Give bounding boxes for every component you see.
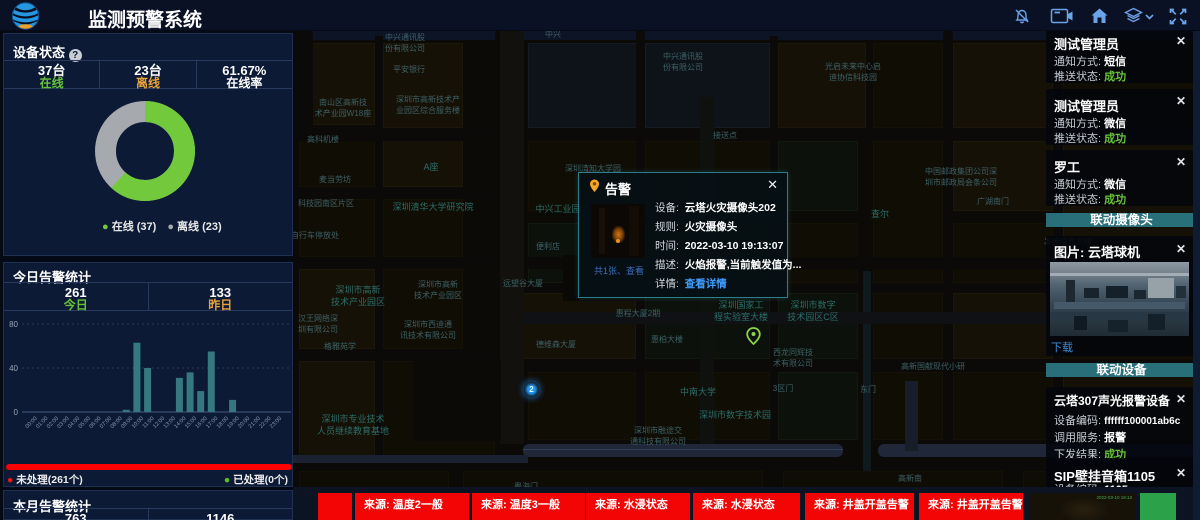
svg-text:10:00: 10:00 <box>131 416 145 430</box>
svg-text:23:00: 23:00 <box>269 416 283 430</box>
svg-text:40: 40 <box>9 364 18 373</box>
svg-text:80: 80 <box>9 320 18 329</box>
